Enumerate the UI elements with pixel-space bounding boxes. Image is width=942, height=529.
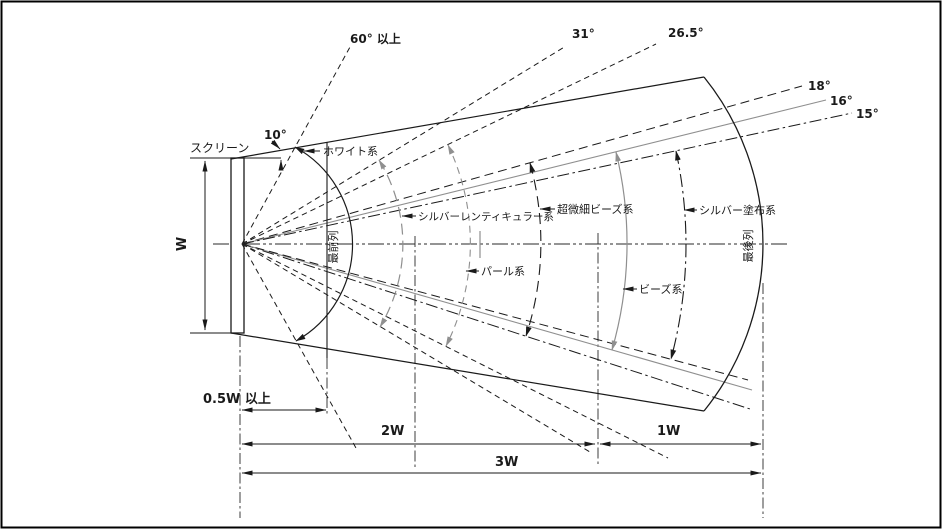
viewing-zone-diagram: スクリーン W 10° 60° 以上 31° 26.5° 18° 16° 15°… bbox=[0, 0, 942, 529]
angle-10-label: 10° bbox=[264, 128, 287, 142]
figure-border bbox=[2, 2, 941, 528]
front-row-label: 最前列 bbox=[326, 231, 340, 264]
dist-1w-label: 1W bbox=[657, 424, 680, 439]
angle-60-label: 60° 以上 bbox=[350, 31, 401, 46]
angle-31-label: 31° bbox=[572, 27, 595, 41]
type-beads-label: ビーズ系 bbox=[639, 282, 682, 296]
screen-rect bbox=[231, 158, 244, 333]
angle-16-label: 16° bbox=[830, 94, 853, 108]
screen-label: スクリーン bbox=[190, 141, 249, 155]
screen-width-label: W bbox=[175, 237, 190, 251]
angle-18-label: 18° bbox=[808, 79, 831, 93]
back-row-label: 最後列 bbox=[741, 230, 755, 263]
angle-15-label: 15° bbox=[856, 107, 879, 121]
type-silver-lenticular-label: シルバーレンティキュラー系 bbox=[418, 211, 554, 223]
type-pearl-label: パール系 bbox=[481, 265, 525, 278]
dist-3w-label: 3W bbox=[495, 455, 518, 470]
dist-2w-label: 2W bbox=[381, 424, 404, 439]
type-silver-coated-label: シルバー塗布系 bbox=[699, 203, 776, 217]
type-ultra-fine-beads-label: 超微細ビーズ系 bbox=[557, 202, 633, 216]
dist-front-label: 0.5W 以上 bbox=[203, 392, 271, 407]
type-white-label: ホワイト系 bbox=[323, 145, 378, 158]
angle-26.5-label: 26.5° bbox=[668, 26, 704, 40]
diagram-canvas: スクリーン W 10° 60° 以上 31° 26.5° 18° 16° 15°… bbox=[0, 0, 942, 529]
